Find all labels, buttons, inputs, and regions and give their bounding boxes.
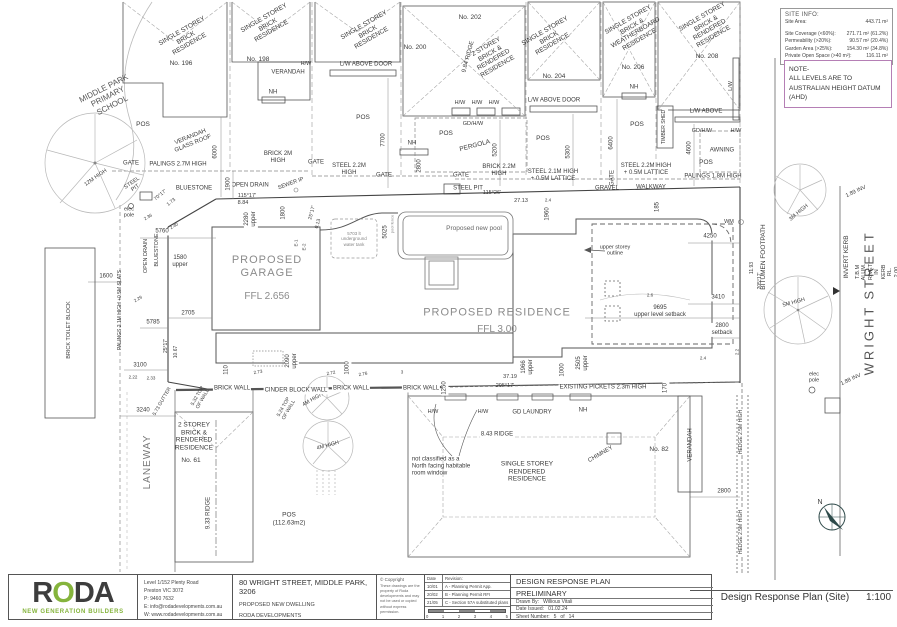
company-logo: RODA NEW GENERATION BUILDERS (9, 575, 138, 619)
project-info: 80 WRIGHT STREET, MIDDLE PARK, 3206 PROP… (233, 575, 377, 619)
drawing-status: PRELIMINARY (511, 588, 713, 599)
revision-row: 10/01 A - Planning Permit App. (425, 583, 510, 591)
site-info-row: Permeability (>20%):90.57 m² (20.4%) (785, 38, 888, 46)
sheet-title: Design Response Plan (Site) (705, 592, 865, 603)
revision-header: Date Revision: (425, 575, 510, 583)
copyright-note: © Copyright These drawings are the prope… (377, 575, 425, 619)
scale-bar-numbers: 012345 (426, 614, 508, 619)
drawing-title: DESIGN RESPONSE PLAN (511, 575, 713, 588)
footer-rule (690, 590, 893, 591)
roda-logo-text: RODA (32, 579, 113, 608)
site-info-row: Site Coverage (<60%):271.71 m² (61.2%) (785, 31, 888, 39)
drawing-info: DESIGN RESPONSE PLAN PRELIMINARY Drawn B… (511, 575, 713, 619)
revision-row: 21/05 C - Section 57A substituted plans (425, 599, 510, 607)
ahd-note: NOTE- ALL LEVELS ARE TO AUSTRALIAN HEIGH… (784, 60, 892, 108)
sheet-scale: 1:100 (866, 592, 891, 603)
site-info-title: SITE INFO: (785, 12, 888, 18)
north-compass-icon (819, 504, 845, 530)
sheet-number-row: Sheet Number: 5 of 14 (511, 613, 713, 621)
date-issued-row: Date Issued: 01.02.24 (511, 606, 713, 613)
scale-bar: 012345 (425, 607, 510, 620)
site-info-row: Site Area:443.71 m² (785, 19, 888, 27)
logo-tagline: NEW GENERATION BUILDERS (22, 609, 123, 615)
project-description: PROPOSED NEW DWELLING (239, 602, 376, 608)
site-info-row: Garden Area (>25%):154.30 m² (34.8%) (785, 46, 888, 54)
drawing-sheet: MIDDLE PARK PRIMARY SCHOOL12M HIGHelec p… (0, 0, 897, 627)
title-block: RODA NEW GENERATION BUILDERS Level 1/152… (8, 574, 712, 620)
company-address: Level 1/152 Plenty Road Preston VIC 3072… (138, 575, 233, 619)
project-address: 80 WRIGHT STREET, MIDDLE PARK, 3206 (239, 578, 376, 597)
project-client: RODA DEVELOPMENTS (239, 613, 376, 619)
revision-row: 20/02 B - Planning Permit RFI (425, 591, 510, 599)
revision-table: Date Revision: 10/01 A - Planning Permit… (425, 575, 511, 619)
drawn-by-row: Drawn By: Willious Vitali (511, 599, 713, 606)
site-info-panel: SITE INFO: Site Area:443.71 m² Site Cove… (780, 8, 893, 65)
site-plan-linework (0, 0, 897, 627)
